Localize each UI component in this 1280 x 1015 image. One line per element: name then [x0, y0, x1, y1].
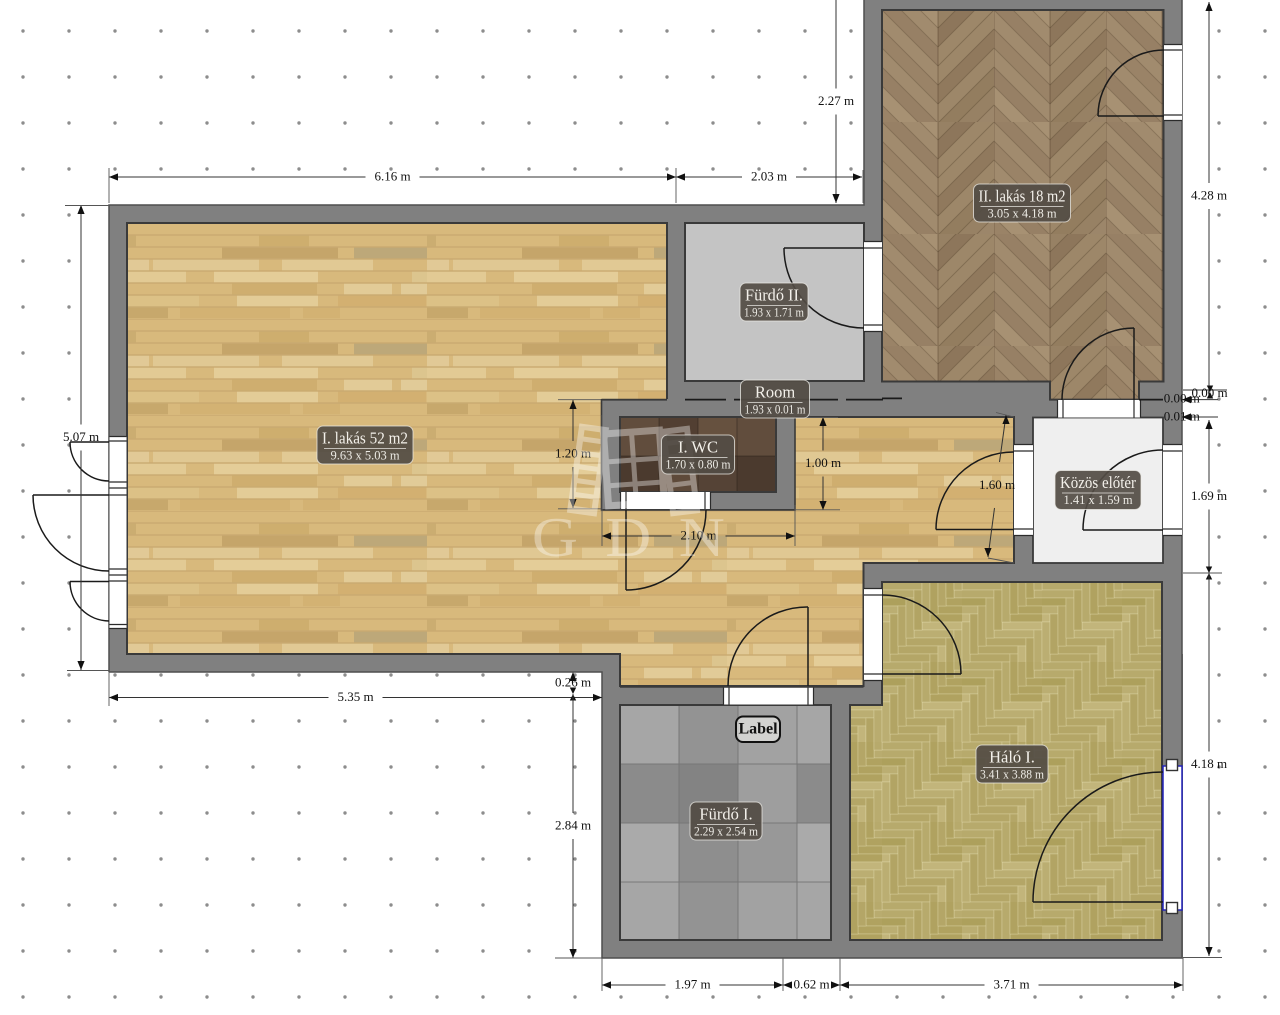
svg-text:3.41 x 3.88 m: 3.41 x 3.88 m	[980, 767, 1044, 781]
svg-text:1.93 x 0.01 m: 1.93 x 0.01 m	[745, 402, 806, 416]
svg-text:1.70 x 0.80 m: 1.70 x 0.80 m	[666, 457, 731, 471]
svg-text:1.69 m: 1.69 m	[1191, 488, 1227, 503]
svg-text:2.84 m: 2.84 m	[555, 817, 591, 832]
svg-text:3.05 x 4.18 m: 3.05 x 4.18 m	[987, 206, 1056, 220]
svg-text:4.18 m: 4.18 m	[1191, 756, 1227, 771]
svg-text:Fürdő I.: Fürdő I.	[699, 804, 752, 823]
svg-text:1.97 m: 1.97 m	[674, 976, 710, 991]
svg-text:9.63 x 5.03 m: 9.63 x 5.03 m	[330, 448, 399, 462]
svg-text:1.60 m: 1.60 m	[979, 477, 1015, 492]
svg-text:Fürdő II.: Fürdő II.	[745, 285, 803, 304]
svg-text:2.27 m: 2.27 m	[818, 93, 854, 108]
svg-text:0.00 m: 0.00 m	[1191, 385, 1227, 400]
svg-text:6.16 m: 6.16 m	[374, 168, 410, 183]
svg-text:I. lakás 52 m2: I. lakás 52 m2	[322, 428, 408, 447]
svg-text:4.28 m: 4.28 m	[1191, 187, 1227, 202]
svg-text:II. lakás 18 m2: II. lakás 18 m2	[979, 186, 1066, 205]
svg-text:I. WC: I. WC	[678, 437, 718, 456]
svg-text:0.26 m: 0.26 m	[555, 674, 591, 689]
svg-text:1.41 x 1.59 m: 1.41 x 1.59 m	[1063, 493, 1132, 507]
svg-text:5.07 m: 5.07 m	[63, 429, 99, 444]
svg-text:GDN: GDN	[532, 505, 752, 567]
svg-text:2.03 m: 2.03 m	[751, 168, 787, 183]
svg-text:Közös előtér: Közös előtér	[1060, 473, 1136, 492]
svg-text:3.71 m: 3.71 m	[993, 976, 1029, 991]
svg-text:1.93 x 1.71 m: 1.93 x 1.71 m	[744, 305, 804, 319]
svg-text:1.00 m: 1.00 m	[805, 455, 841, 470]
svg-text:2.29 x 2.54 m: 2.29 x 2.54 m	[694, 824, 758, 838]
svg-text:Label: Label	[738, 721, 778, 738]
svg-text:0.62 m: 0.62 m	[793, 976, 829, 991]
svg-text:0.01 m: 0.01 m	[1164, 408, 1200, 423]
svg-text:5.35 m: 5.35 m	[337, 689, 373, 704]
svg-text:Háló I.: Háló I.	[989, 747, 1035, 766]
svg-text:Room: Room	[755, 382, 796, 401]
